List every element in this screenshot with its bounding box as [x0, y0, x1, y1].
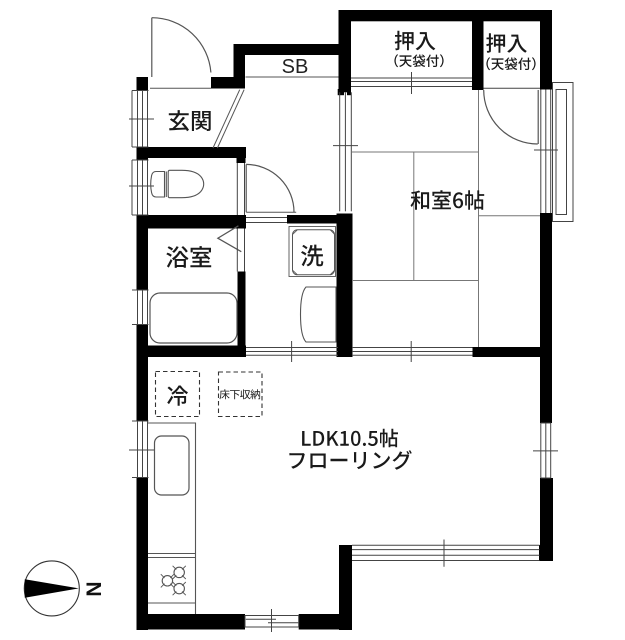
- svg-text:N: N: [82, 582, 105, 597]
- svg-text:SB: SB: [282, 56, 309, 78]
